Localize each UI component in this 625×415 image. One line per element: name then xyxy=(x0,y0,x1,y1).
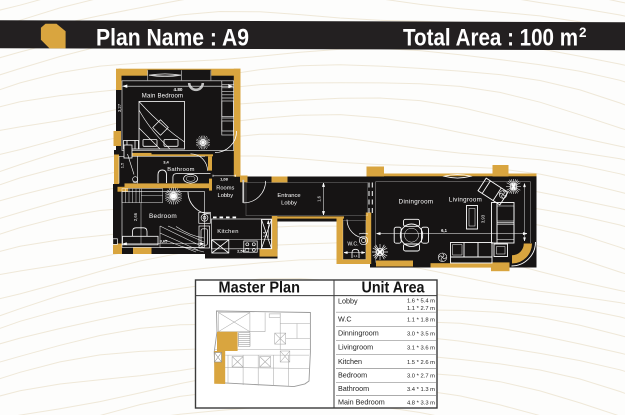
svg-text:Bedroom: Bedroom xyxy=(149,213,177,220)
svg-text:Kitchen: Kitchen xyxy=(338,357,362,366)
svg-text:Main Bedroom: Main Bedroom xyxy=(142,94,183,100)
svg-text:2,66: 2,66 xyxy=(133,212,138,221)
svg-text:Total Area : 100 m: Total Area : 100 m xyxy=(403,24,578,51)
svg-text:3,65: 3,65 xyxy=(160,239,169,244)
svg-text:2,58: 2,58 xyxy=(237,248,246,253)
svg-text:Lobby: Lobby xyxy=(218,193,234,199)
svg-text:Entrance: Entrance xyxy=(277,193,300,199)
svg-text:Bedroom: Bedroom xyxy=(338,371,367,380)
svg-text:Lobby: Lobby xyxy=(338,296,358,305)
svg-text:1,1: 1,1 xyxy=(353,254,358,258)
svg-text:Dinningroom: Dinningroom xyxy=(338,329,379,338)
svg-text:Diningroom: Diningroom xyxy=(399,199,434,206)
svg-text:1,4: 1,4 xyxy=(262,231,267,237)
svg-text:1,5: 1,5 xyxy=(119,162,124,168)
svg-text:1,6: 1,6 xyxy=(317,195,322,201)
svg-text:Rooms: Rooms xyxy=(216,185,234,191)
svg-text:1.5 * 2.6 m: 1.5 * 2.6 m xyxy=(407,360,435,366)
svg-text:1.1 * 2.7 m: 1.1 * 2.7 m xyxy=(407,306,435,312)
svg-text:Plan Name : A9: Plan Name : A9 xyxy=(96,24,249,51)
svg-text:Master Plan: Master Plan xyxy=(219,280,301,297)
svg-text:6,1: 6,1 xyxy=(441,228,447,233)
svg-text:1.1 * 1.8 m: 1.1 * 1.8 m xyxy=(407,318,435,324)
svg-text:4.8 * 3.3 m: 4.8 * 3.3 m xyxy=(407,400,435,406)
svg-text:Kitchen: Kitchen xyxy=(217,229,238,235)
svg-text:3,4: 3,4 xyxy=(163,160,169,165)
svg-text:Bathroom: Bathroom xyxy=(167,167,195,173)
svg-text:3.0 * 2.7 m: 3.0 * 2.7 m xyxy=(407,374,435,380)
svg-text:3.4 * 1.3 m: 3.4 * 1.3 m xyxy=(407,387,435,393)
svg-text:3,27: 3,27 xyxy=(117,103,122,112)
svg-text:Unit Area: Unit Area xyxy=(362,280,425,297)
svg-text:1,08: 1,08 xyxy=(220,176,229,181)
svg-text:3,93: 3,93 xyxy=(481,214,486,223)
svg-text:3.0 * 3.5 m: 3.0 * 3.5 m xyxy=(407,332,435,338)
svg-text:Livingroom: Livingroom xyxy=(338,343,373,352)
svg-text:Lobby: Lobby xyxy=(281,201,297,207)
svg-text:4.80: 4.80 xyxy=(174,87,183,92)
svg-text:Main Bedroom: Main Bedroom xyxy=(338,397,385,406)
svg-text:2: 2 xyxy=(579,25,587,40)
svg-text:3.1 * 3.6 m: 3.1 * 3.6 m xyxy=(407,346,435,352)
svg-text:Livingroom: Livingroom xyxy=(449,197,482,204)
svg-text:W.C: W.C xyxy=(338,314,352,323)
svg-text:Bathroom: Bathroom xyxy=(338,384,369,393)
svg-text:1.6 * 5.4 m: 1.6 * 5.4 m xyxy=(407,298,435,304)
svg-text:W.C.: W.C. xyxy=(347,242,358,248)
